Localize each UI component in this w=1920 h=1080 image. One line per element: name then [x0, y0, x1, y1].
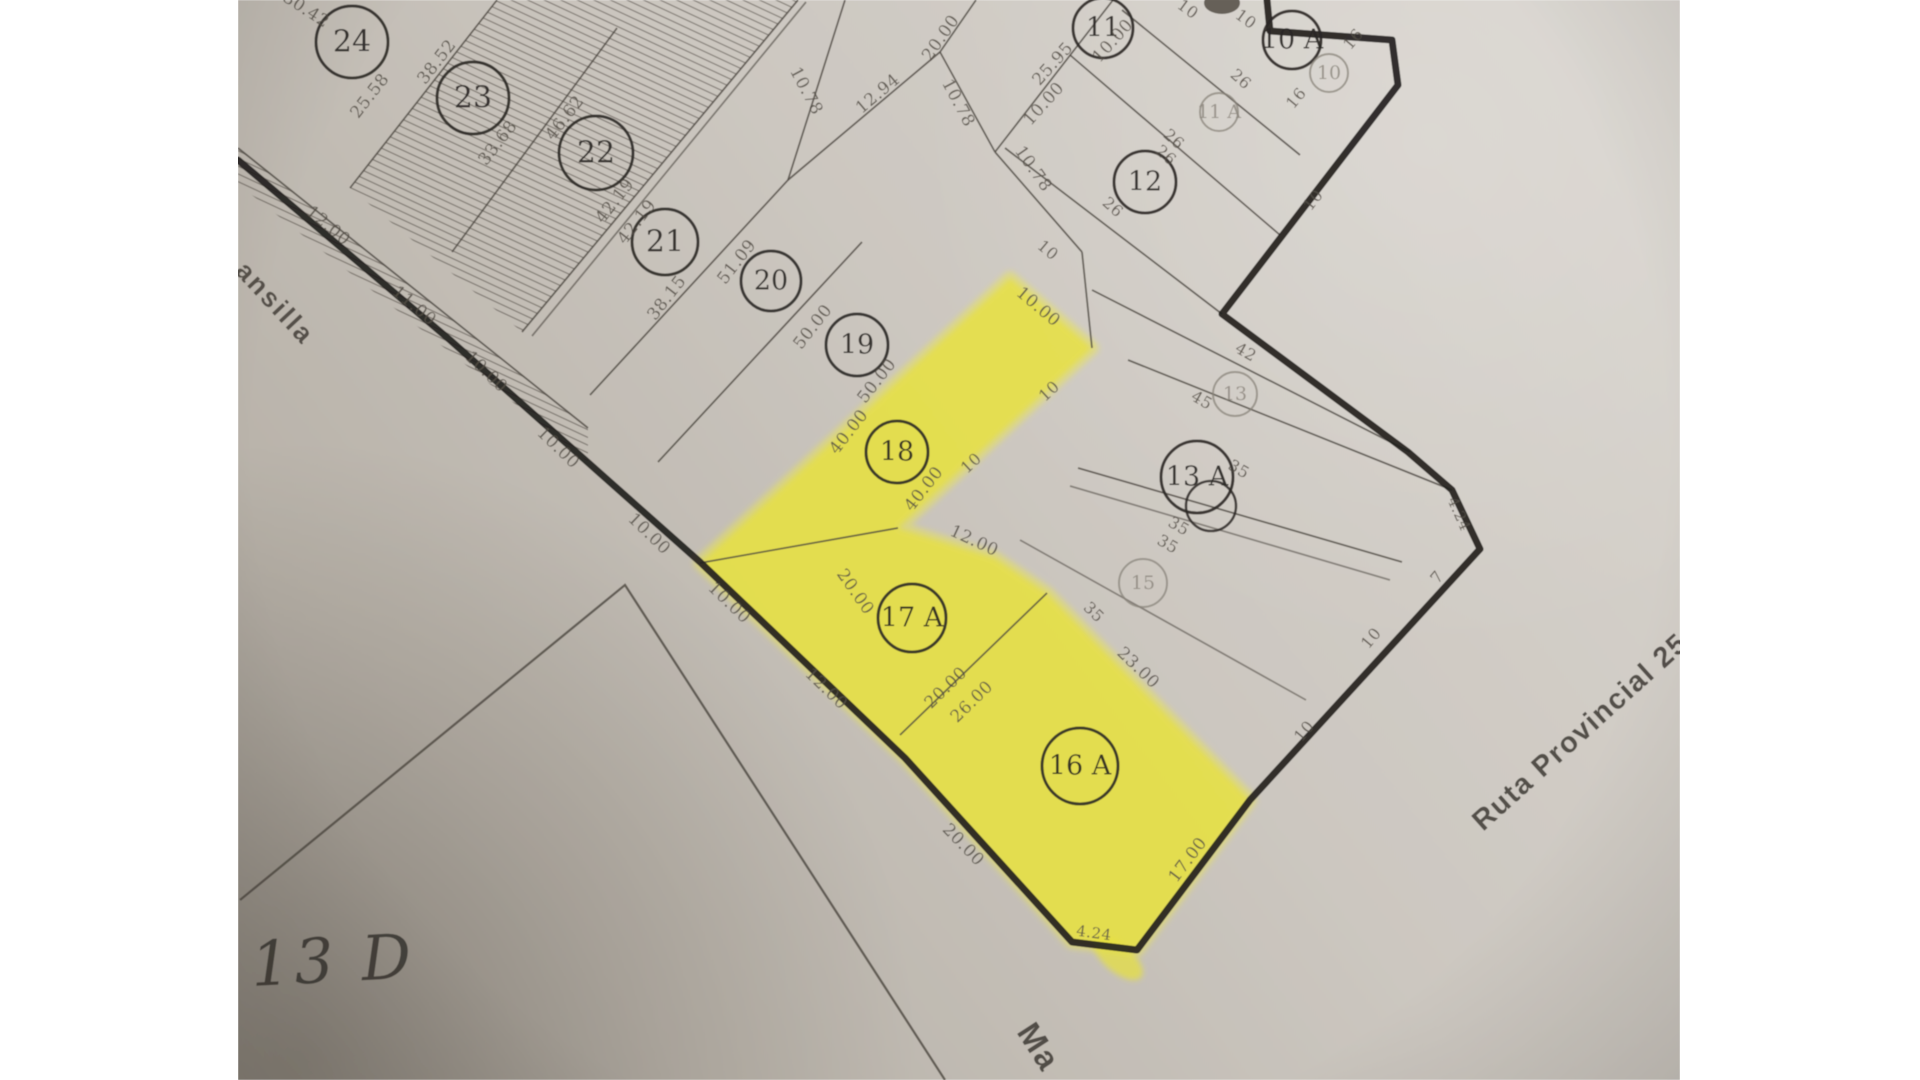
lot-number-10A: 10 A — [1261, 25, 1324, 56]
lot-13d-label: 13 D — [249, 919, 417, 1000]
lot-number-12: 12 — [1128, 167, 1162, 198]
lot-number-10: 10 — [1317, 62, 1341, 84]
lot-number-18: 18 — [880, 437, 914, 468]
lot-number-11A: 11 A — [1197, 101, 1241, 123]
lot-number-20: 20 — [754, 266, 788, 297]
map-photo: 2423222120191817 A16 A121110 A13 A131510… — [238, 0, 1680, 1080]
lot-number-15: 15 — [1131, 572, 1155, 594]
lot-number-23: 23 — [454, 81, 492, 116]
lot-number-13A: 13 A — [1166, 462, 1229, 493]
lot-number-21: 21 — [646, 225, 684, 260]
lot-number-13: 13 — [1223, 383, 1247, 405]
cadastral-map-svg: 2423222120191817 A16 A121110 A13 A131510… — [238, 0, 1680, 1080]
lot-number-22: 22 — [577, 136, 615, 171]
screenshot-root: 2423222120191817 A16 A121110 A13 A131510… — [0, 0, 1920, 1080]
lot-number-19: 19 — [840, 330, 874, 361]
lot-number-17A: 17 A — [881, 603, 944, 634]
lot-number-24: 24 — [333, 25, 371, 60]
lot-number-16A: 16 A — [1049, 751, 1112, 782]
